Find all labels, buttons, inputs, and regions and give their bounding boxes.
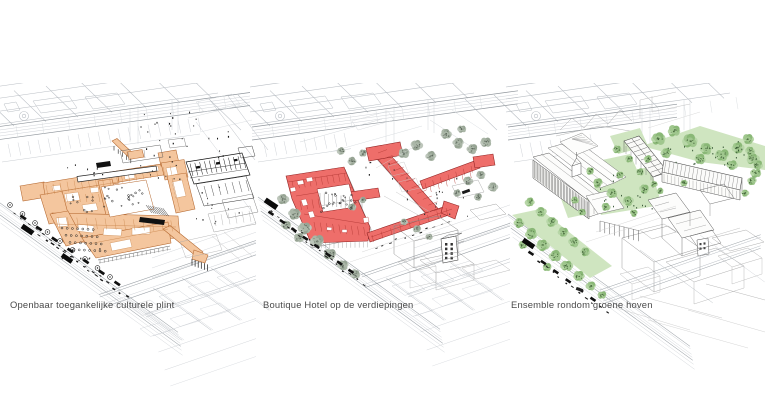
svg-text:Boutique Hotel op de verdiepin: Boutique Hotel op de verdiepingen <box>263 299 413 310</box>
svg-text:Openbaar toegankelijke culture: Openbaar toegankelijke culturele plint <box>10 299 175 310</box>
svg-text:Ensemble rondom groene hoven: Ensemble rondom groene hoven <box>511 299 653 310</box>
